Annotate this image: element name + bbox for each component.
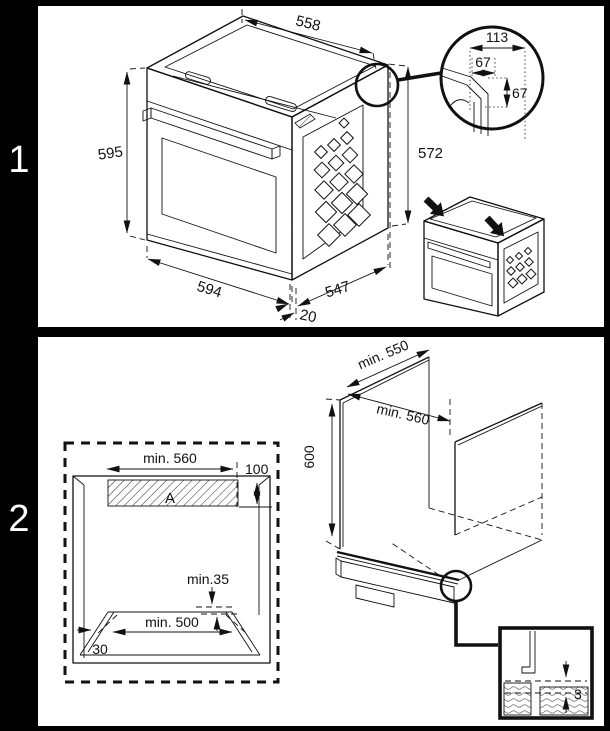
small-oven-louvers — [506, 247, 535, 287]
dim-595-label: 595 — [97, 143, 124, 163]
oven-carrying-drawing — [420, 193, 544, 316]
base-width-label: min. 500 — [145, 614, 199, 630]
oven-dimension-drawing: 595 558 572 594 — [38, 6, 604, 327]
corner-detail-callout: 113 67 67 — [356, 27, 543, 139]
niche-perspective-view: min. 550 min. 560 600 — [301, 337, 542, 645]
step-1-number: 1 — [0, 141, 38, 179]
manual-page: 1 2 — [0, 0, 610, 731]
dimension-bottom-offset: 20 — [277, 284, 318, 326]
dim-572-label: 572 — [418, 145, 443, 162]
niche-dimension-drawing: A min. 560 100 min.35 min. 500 — [38, 337, 604, 726]
detail-67w-label: 67 — [475, 54, 491, 70]
detail-113-label: 113 — [486, 29, 509, 45]
oven-perspective-drawing — [143, 16, 388, 280]
side-clearance-label: 30 — [92, 641, 108, 657]
dimension-bottom-width: 594 — [147, 246, 292, 304]
panel-gap-label: 3 — [574, 686, 582, 702]
side-louver-diamonds — [314, 118, 370, 246]
grip-arrow-left-icon — [420, 193, 449, 222]
rear-clearance-label: min.35 — [187, 571, 229, 587]
step-2-number: 2 — [0, 500, 38, 538]
dim-547-label: 547 — [323, 278, 352, 302]
niche-front-view: A min. 560 100 min.35 min. 500 — [65, 443, 278, 682]
vent-depth-label: 100 — [245, 461, 269, 477]
panel-installation-dimensions: A min. 560 100 min.35 min. 500 — [38, 337, 604, 726]
grip-arrow-right-icon — [481, 213, 510, 242]
dimension-front-height: 595 — [97, 68, 145, 240]
persp-height-label: 600 — [301, 445, 317, 469]
persp-depth-label: min. 550 — [355, 337, 411, 372]
persp-width-label: min. 560 — [375, 400, 431, 428]
dim-558-label: 558 — [294, 12, 322, 35]
dim-20-label: 20 — [298, 306, 318, 326]
panel-oven-dimensions: 595 558 572 594 — [38, 6, 604, 327]
vent-area-label: A — [165, 490, 175, 507]
niche-top-width-label: min. 560 — [143, 450, 197, 466]
panel-gap-detail-box: 3 — [500, 628, 592, 718]
detail-67h-label: 67 — [512, 85, 528, 101]
